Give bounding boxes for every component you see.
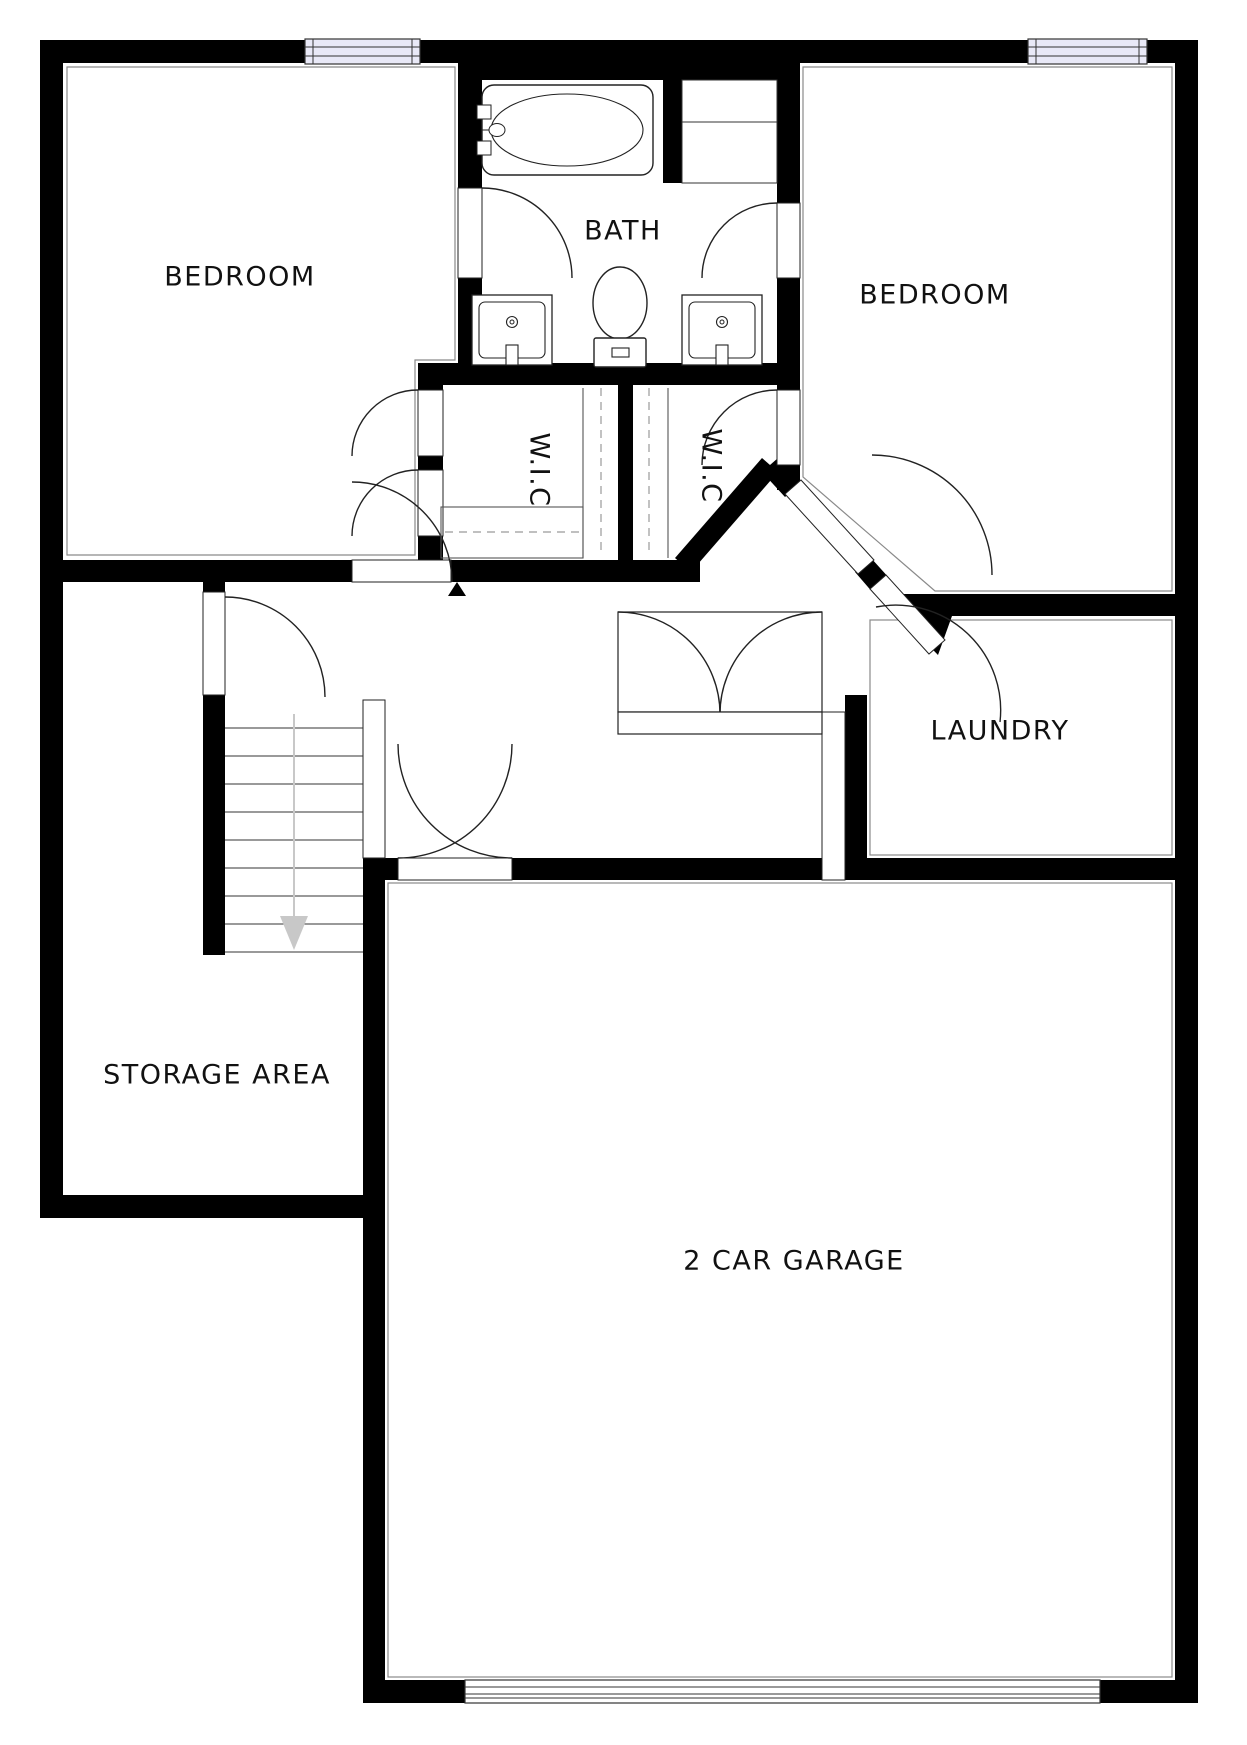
toilet — [593, 267, 647, 367]
bath-niche-partition-wall — [663, 63, 682, 183]
floor-plan-page: BEDROOM BEDROOM BATH W.I.C W.I.C LAUNDRY… — [0, 0, 1247, 1745]
wic-right-label: W.I.C — [696, 428, 727, 503]
toilet-bowl — [593, 267, 647, 339]
wic-right-door-frame — [777, 390, 800, 465]
laundry-top-wall — [900, 594, 1175, 616]
garage-label: 2 CAR GARAGE — [683, 1246, 904, 1277]
hall-closet-side-panel — [822, 712, 845, 880]
bath-label: BATH — [584, 216, 662, 247]
bath-niche — [682, 80, 777, 183]
garage-door — [465, 1680, 1100, 1703]
window-top-left — [305, 39, 420, 64]
sink-left — [472, 295, 552, 365]
garage-left-wall — [363, 858, 385, 1703]
exterior-top-wall — [40, 40, 1198, 63]
bedroom-left-closet-door-frame — [418, 390, 443, 456]
bath-right-door-frame — [777, 203, 800, 278]
window-frame — [305, 39, 420, 64]
sink-faucet — [506, 345, 518, 365]
bath-left-door-frame — [458, 188, 482, 278]
bedroom-left-second-door-frame — [418, 470, 443, 536]
sink-drain-center — [510, 320, 514, 324]
sink-right — [682, 295, 762, 365]
closet-threshold — [618, 712, 822, 734]
storage-bottom-wall — [40, 1195, 385, 1218]
storage-area-label: STORAGE AREA — [103, 1060, 331, 1091]
laundry-left-wall — [845, 695, 867, 880]
bathtub-basin — [491, 94, 643, 166]
bedroom-left-entry-door-frame — [352, 560, 451, 582]
sink-drain-center — [720, 320, 724, 324]
bath-top-wall-thickening — [458, 63, 800, 80]
exterior-left-wall — [40, 40, 63, 1218]
bath-niche-outline — [682, 80, 777, 183]
bathtub-spout — [489, 124, 505, 137]
bathtub-faucet-handle — [477, 105, 491, 119]
stair-railing-strip — [363, 700, 385, 858]
floor-plan-drawing: BEDROOM BEDROOM BATH W.I.C W.I.C LAUNDRY… — [0, 0, 1247, 1745]
bedroom-left-label: BEDROOM — [164, 262, 315, 293]
sink-faucet — [716, 345, 728, 365]
wic-divider-wall — [618, 385, 633, 560]
window-top-right — [1028, 39, 1147, 64]
laundry-label: LAUNDRY — [931, 716, 1070, 747]
bathtub-faucet-handle — [477, 141, 491, 155]
window-frame — [1028, 39, 1147, 64]
garage-door-panel — [465, 1680, 1100, 1703]
laundry-bottom-wall — [845, 858, 1175, 880]
stair-door-frame — [203, 592, 225, 695]
garage-entry-door-frame — [398, 858, 512, 880]
bedroom-right-label: BEDROOM — [859, 280, 1010, 311]
toilet-flush-button — [612, 348, 629, 357]
exterior-right-wall — [1175, 40, 1198, 1703]
wic-left-label: W.I.C — [524, 432, 555, 507]
